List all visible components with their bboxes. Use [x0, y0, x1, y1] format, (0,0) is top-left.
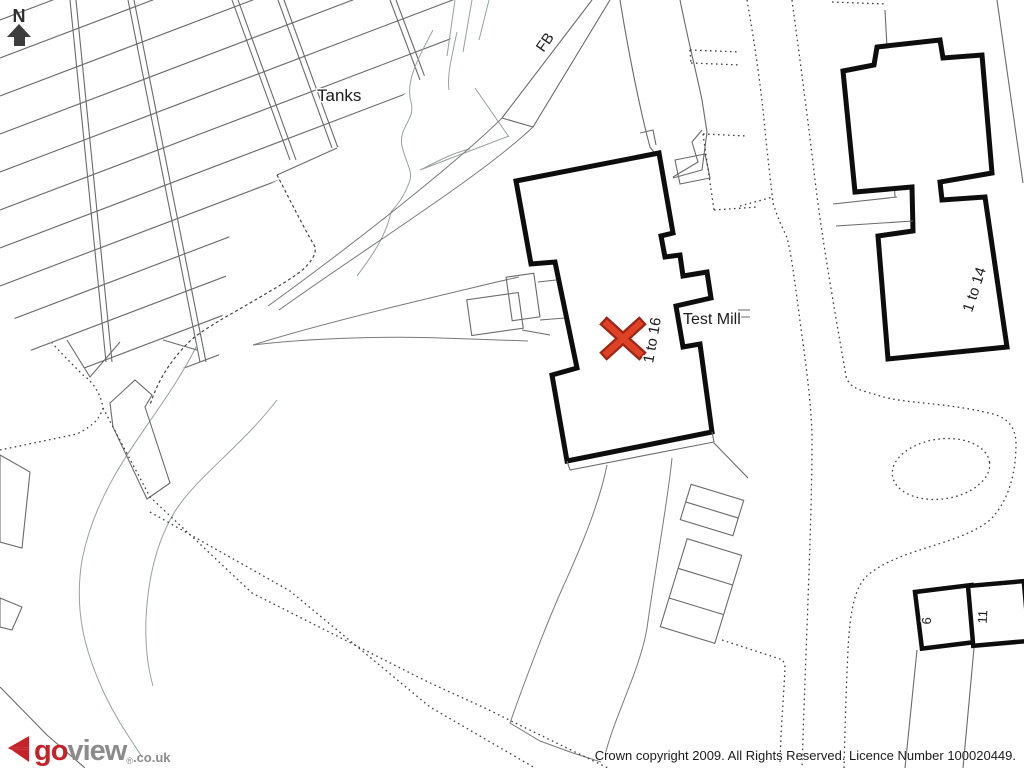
house-6-label: 6 [919, 617, 934, 625]
tanks-label: Tanks [317, 86, 361, 105]
logo-word-go: go [34, 737, 67, 766]
goview-logo-icon [5, 734, 31, 764]
test-mill-label: Test Mill [683, 311, 741, 328]
goview-logo[interactable]: goview®.co.uk [5, 734, 171, 766]
logo-domain-suffix: .co.uk [133, 751, 171, 764]
logo-registered-mark: ® [126, 757, 133, 766]
logo-word-view: view [67, 737, 126, 766]
house-11-label: 11 [975, 610, 991, 624]
site-map[interactable]: N Tanks FB Test Mill 1 to 16 1 to 14 6 1… [0, 0, 1024, 768]
copyright-notice: Crown copyright 2009. All Rights Reserve… [595, 748, 1016, 763]
north-label: N [13, 6, 26, 26]
